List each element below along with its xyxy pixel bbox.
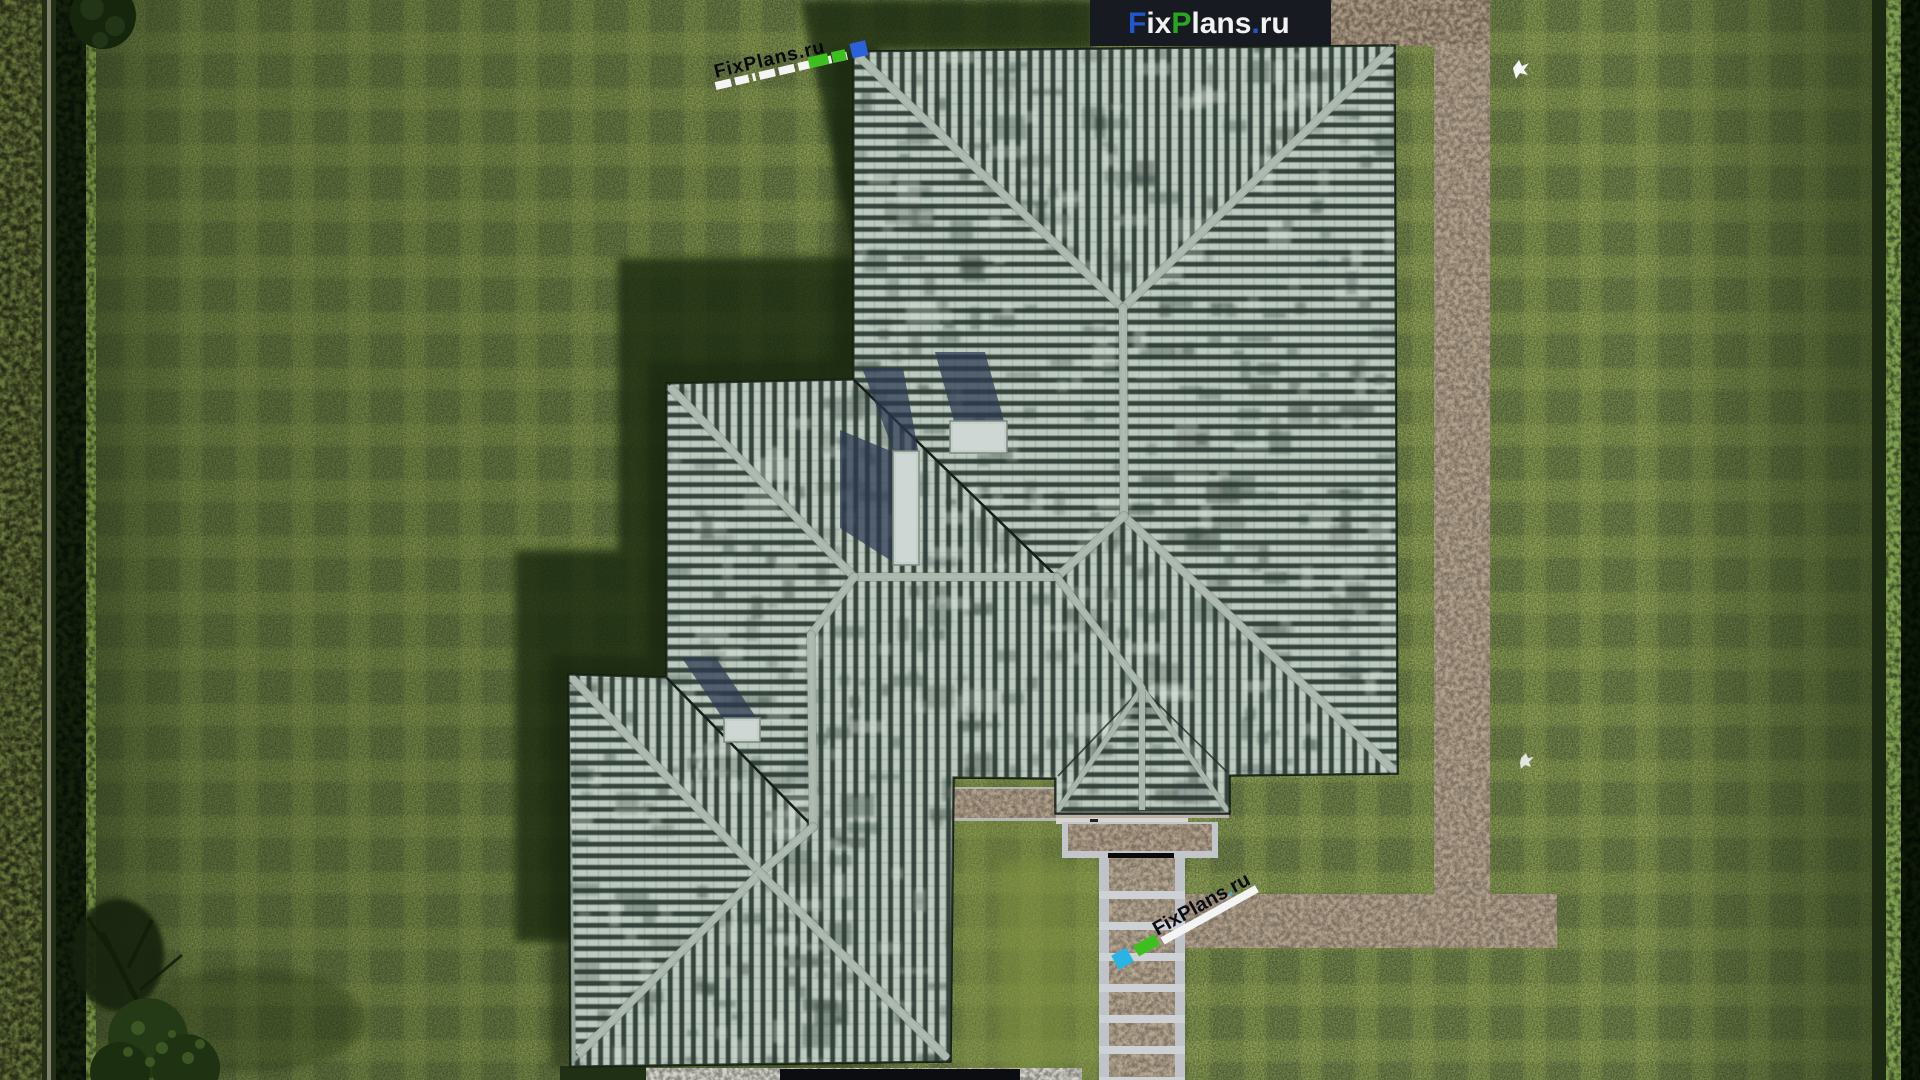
svg-text:FixPlans.ru: FixPlans.ru bbox=[1128, 7, 1290, 40]
